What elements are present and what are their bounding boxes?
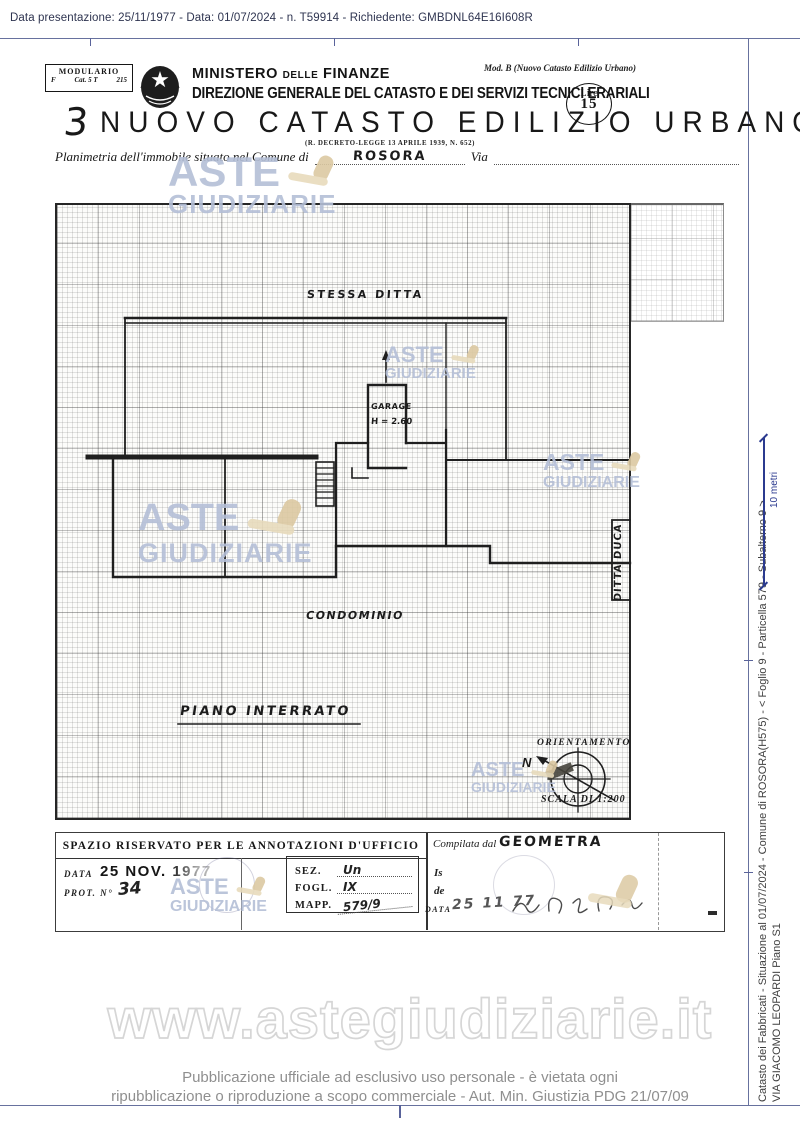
law-reference: (R. DECRETO-LEGGE 13 APRILE 1939, N. 652…: [0, 140, 780, 147]
top-frame-line: [0, 38, 800, 39]
svg-text:★: ★: [150, 67, 170, 92]
form-number: 3: [62, 100, 91, 144]
label-garage-height: H = 2.60: [371, 417, 413, 427]
watermark-text: GIUDIZIARIE: [170, 899, 277, 914]
aste-watermark: ASTE GIUDIZIARIE: [471, 759, 568, 794]
website-watermark: www.astegiudiziarie.it: [60, 986, 760, 1051]
label-garage: GARAGE: [371, 402, 412, 411]
watermark-text: GIUDIZIARIE: [138, 541, 323, 567]
scale-bar: [763, 438, 765, 586]
aste-watermark: ASTE GIUDIZIARIE: [170, 875, 277, 914]
modulario-col: Cat. 5 T: [75, 76, 98, 84]
fold-mark: [744, 872, 753, 873]
modulario-col: 215: [117, 76, 128, 84]
gavel-icon: [245, 496, 323, 541]
aste-watermark: ASTE GIUDIZIARIE: [543, 450, 652, 490]
modulario-title: MODULARIO: [46, 67, 132, 76]
modulario-col: F: [51, 76, 56, 84]
is-label: Is: [434, 867, 443, 879]
fogl-value: IX: [337, 881, 412, 894]
data2-label: DATA: [425, 905, 451, 914]
watermark-text: ASTE: [471, 761, 524, 780]
label-orientamento: ORIENTAMENTO: [537, 738, 631, 748]
gavel-icon: [286, 153, 352, 191]
compilata-value: GEOMETRA: [498, 834, 603, 850]
label-condominio: CONDOMINIO: [305, 609, 405, 622]
prot-label: PROT. N°: [64, 888, 113, 898]
frame-tick: [399, 1105, 401, 1118]
footer-line-2: ripubblicazione o riproduzione a scopo c…: [0, 1087, 800, 1106]
label-ditta-duca: DITTA DUCA: [613, 523, 624, 602]
watermark-text: GIUDIZIARIE: [471, 781, 568, 794]
prot-value: 34: [117, 878, 142, 900]
ministry-title: MINISTERO delle FINANZE: [192, 66, 390, 82]
modulario-box: MODULARIO F Cat. 5 T 215: [45, 64, 133, 92]
footer-line-1: Pubblicazione ufficiale ad esclusivo uso…: [0, 1068, 800, 1087]
watermark-text: GIUDIZIARIE: [543, 475, 652, 490]
fold-mark: [744, 660, 753, 661]
data-label: DATA: [64, 869, 93, 879]
legal-footer: Pubblicazione ufficiale ad esclusivo uso…: [0, 1068, 800, 1106]
mod-b-label: Mod. B (Nuovo Catasto Edilizio Urbano): [484, 63, 636, 73]
sez-label: SEZ.: [295, 866, 337, 877]
watermark-text: ASTE: [385, 345, 444, 366]
watermark-text: GIUDIZIARIE: [385, 367, 490, 381]
gavel-icon: [450, 343, 490, 367]
registration-mark: [708, 911, 717, 915]
fogl-label: FOGL.: [295, 883, 337, 894]
aste-watermark: ASTE GIUDIZIARIE: [168, 152, 352, 217]
document-title: NUOVO CATASTO EDILIZIO URBANO: [100, 106, 800, 140]
presentation-header-text: Data presentazione: 25/11/1977 - Data: 0…: [10, 12, 533, 24]
watermark-text: ASTE: [168, 152, 280, 192]
comune-value: ROSORA: [352, 149, 427, 164]
watermark-text: ASTE: [138, 500, 239, 536]
compilata-label: Compilata dal: [433, 838, 496, 850]
scale-bar-label: 10 metri: [769, 472, 780, 508]
sez-value: Un: [337, 864, 412, 877]
aste-watermark: ASTE GIUDIZIARIE: [138, 496, 323, 567]
sez-fogl-mapp-box: SEZ. Un FOGL. IX MAPP. 579/9: [286, 856, 419, 913]
frame-tick: [90, 38, 91, 46]
gavel-icon: [530, 759, 568, 781]
round-stamp: [493, 855, 555, 915]
form-divider: [426, 833, 428, 930]
state-emblem-icon: ★: [136, 62, 184, 110]
mapp-value: 579/9: [337, 894, 413, 915]
label-piano-interrato: PIANO INTERRATO: [179, 704, 352, 719]
watermark-text: ASTE: [170, 877, 229, 898]
aste-watermark: ASTE GIUDIZIARIE: [385, 343, 490, 381]
frame-tick: [334, 38, 335, 46]
label-stessa-ditta: STESSA DITTA: [307, 288, 425, 301]
gavel-icon: [235, 875, 277, 899]
gavel-icon: [610, 450, 652, 475]
mapp-label: MAPP.: [295, 900, 337, 911]
frame-tick: [578, 38, 579, 46]
via-label: Via: [471, 149, 488, 165]
watermark-text: GIUDIZIARIE: [168, 192, 352, 217]
location-line: Planimetria dell'immobile situato nel Co…: [55, 148, 745, 165]
gavel-icon: [582, 872, 662, 914]
de-label: de: [434, 885, 444, 897]
watermark-text: ASTE: [543, 452, 604, 474]
right-frame-line: [748, 38, 749, 1105]
scanned-cadastral-page: Data presentazione: 25/11/1977 - Data: 0…: [0, 0, 800, 1132]
label-scala: SCALA DI 1:200: [541, 794, 626, 805]
